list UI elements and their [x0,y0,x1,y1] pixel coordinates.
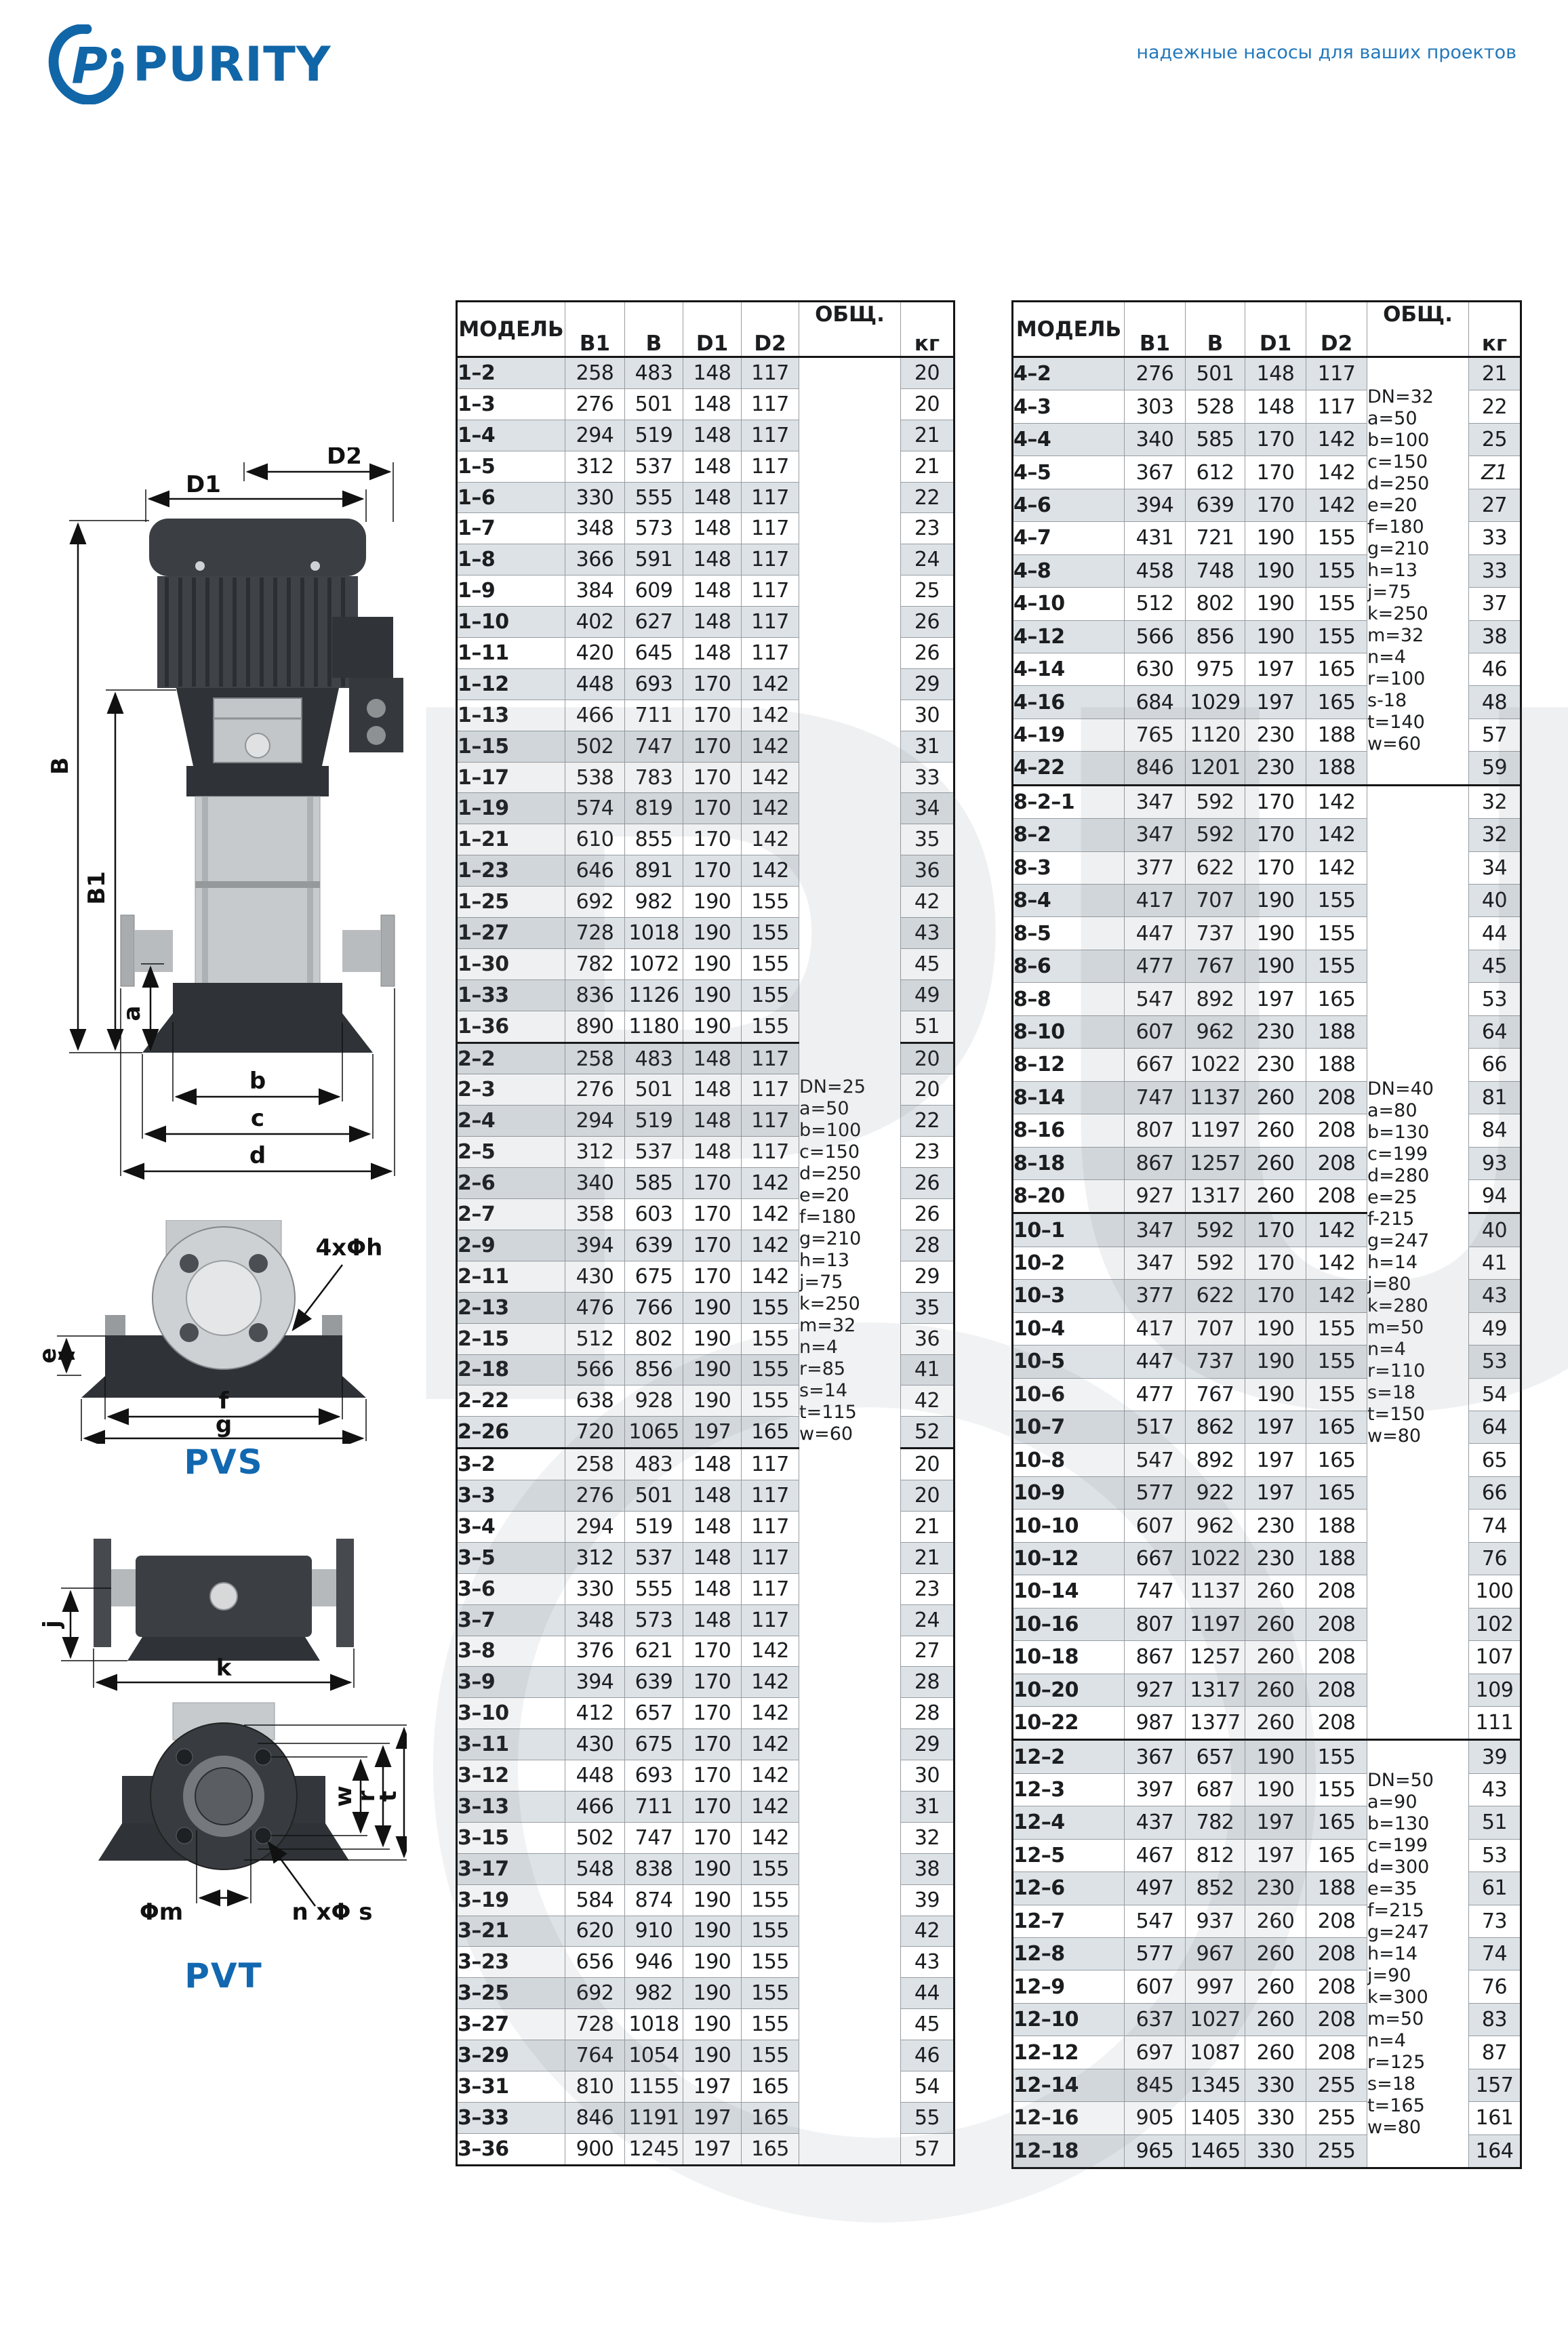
dim-value-cell: 117 [742,1573,799,1604]
dim-value-cell: 188 [1306,719,1367,751]
dim-value-cell: 117 [742,1604,799,1636]
model-cell: 2–3 [457,1074,565,1106]
notes-line: j=75 [1367,582,1468,603]
common-dims-cell: DN=40a=80b=130c=199d=280e=25f-215g=247h=… [1367,785,1469,1740]
dim-value-cell: 117 [742,1542,799,1573]
dimensions-table-series-4-12: МОДЕЛЬB1BD1D2ОБЩ.кг4–2276501148117DN=32a… [1011,300,1520,2169]
model-cell: 10–18 [1013,1641,1125,1674]
dim-value-cell: 1087 [1186,2036,1245,2069]
weight-cell: 34 [901,793,954,824]
dim-label-f: f [219,1388,230,1415]
dim-value-cell: 258 [565,1043,625,1074]
dim-value-cell: 737 [1186,1345,1245,1378]
model-cell: 10–8 [1013,1444,1125,1476]
dim-value-cell: 197 [683,2071,742,2102]
dim-value-cell: 170 [683,668,742,700]
common-dims-cell: DN=50a=90b=130c=199d=300e=35f=215g=247h=… [1367,1740,1469,2168]
dim-value-cell: 502 [565,731,625,762]
dim-value-cell: 838 [625,1853,683,1884]
dim-value-cell: 117 [742,1137,799,1168]
dim-value-cell: 547 [1125,1905,1186,1937]
model-cell: 10–16 [1013,1608,1125,1640]
dim-value-cell: 165 [742,2102,799,2133]
dim-value-cell: 697 [1125,2036,1186,2069]
dim-value-cell: 276 [565,388,625,420]
dim-value-cell: 577 [1125,1476,1186,1509]
dim-value-cell: 208 [1306,1674,1367,1706]
dim-value-cell: 312 [565,1542,625,1573]
weight-cell: 111 [1469,1706,1521,1739]
model-cell: 8–4 [1013,885,1125,917]
dim-value-cell: 810 [565,2071,625,2102]
weight-cell: 25 [1469,423,1521,456]
dim-value-cell: 170 [683,1168,742,1199]
weight-cell: 32 [1469,785,1521,818]
pvs-base-front-view: 4xΦh e f g [41,1220,407,1444]
model-cell: 1–2 [457,357,565,389]
dim-value-cell: 155 [742,1011,799,1043]
dim-value-cell: 967 [1186,1938,1245,1970]
dim-value-cell: 155 [742,1978,799,2009]
dim-value-cell: 165 [1306,1444,1367,1476]
model-cell: 4–19 [1013,719,1125,751]
dim-value-cell: 230 [1245,1510,1306,1542]
model-cell: 4–5 [1013,456,1125,489]
dim-value-cell: 1137 [1186,1575,1245,1608]
dim-value-cell: 142 [742,1230,799,1261]
notes-line: a=50 [799,1098,900,1120]
dim-value-cell: 117 [742,482,799,513]
dim-value-cell: 675 [625,1261,683,1292]
model-cell: 3–19 [457,1884,565,1916]
dim-value-cell: 148 [683,1074,742,1106]
dim-value-cell: 197 [1245,1444,1306,1476]
dim-value-cell: 142 [742,1791,799,1822]
dim-value-cell: 466 [565,1791,625,1822]
common-dims-notes: DN=25a=50b=100c=150d=250e=20f=180g=210h=… [799,1076,900,1445]
weight-cell: 43 [1469,1280,1521,1312]
model-cell: 12–16 [1013,2102,1125,2134]
dim-label-d: d [249,1142,266,1169]
pump-barrel [195,796,320,986]
dim-value-cell: 190 [683,2009,742,2040]
dim-value-cell: 573 [625,513,683,544]
dim-value-cell: 170 [683,1698,742,1729]
dim-value-cell: 148 [683,420,742,451]
model-cell: 2–26 [457,1417,565,1449]
weight-cell: 45 [1469,950,1521,982]
model-cell: 2–7 [457,1199,565,1230]
dim-value-cell: 190 [683,948,742,979]
model-cell: 4–14 [1013,653,1125,685]
dim-label-g: g [216,1411,232,1438]
weight-cell: 22 [901,482,954,513]
dim-value-cell: 197 [1245,983,1306,1015]
dim-value-cell: 982 [625,1978,683,2009]
brand-tagline: надежные насосы для ваших проектов [1136,42,1516,63]
notes-line: h=14 [1367,1252,1468,1274]
dim-value-cell: 170 [1245,423,1306,456]
dim-value-cell: 638 [565,1385,625,1417]
dim-value-cell: 548 [565,1853,625,1884]
notes-line: w=80 [1367,1425,1468,1447]
notes-line: t=140 [1367,712,1468,733]
dim-value-cell: 208 [1306,1179,1367,1213]
weight-cell: 20 [901,1449,954,1480]
dim-value-cell: 1027 [1186,2003,1245,2036]
model-cell: 12–4 [1013,1806,1125,1839]
model-cell: 8–5 [1013,917,1125,950]
dim-label-B: B [47,757,74,775]
dim-value-cell: 155 [1306,1345,1367,1378]
dim-value-cell: 208 [1306,1641,1367,1674]
model-cell: 1–21 [457,824,565,855]
model-cell: 3–13 [457,1791,565,1822]
dim-value-cell: 190 [1245,554,1306,587]
model-cell: 2–5 [457,1137,565,1168]
weight-cell: 33 [1469,554,1521,587]
weight-cell: 23 [901,1573,954,1604]
notes-line: n=4 [1367,1339,1468,1360]
dim-value-cell: 547 [1125,983,1186,1015]
model-cell: 1–8 [457,544,565,575]
dim-value-cell: 142 [1306,1213,1367,1247]
notes-line: b=100 [1367,430,1468,451]
dim-value-cell: 1257 [1186,1147,1245,1179]
weight-cell: 40 [1469,885,1521,917]
weight-cell: 66 [1469,1476,1521,1509]
weight-cell: 21 [1469,357,1521,390]
model-cell: 1–27 [457,918,565,949]
dim-value-cell: 190 [683,979,742,1011]
dim-value-cell: 330 [1245,2069,1306,2101]
dim-value-cell: 142 [1306,1247,1367,1279]
weight-cell: 20 [901,357,954,389]
weight-cell: 93 [1469,1147,1521,1179]
dim-value-cell: 142 [742,1667,799,1698]
dim-value-cell: 1072 [625,948,683,979]
dim-value-cell: 260 [1245,1674,1306,1706]
dim-value-cell: 117 [742,1074,799,1106]
model-cell: 1–7 [457,513,565,544]
dim-value-cell: 711 [625,1791,683,1822]
dim-value-cell: 846 [565,2102,625,2133]
model-cell: 4–10 [1013,588,1125,620]
weight-cell: 24 [901,544,954,575]
weight-cell: 57 [1469,719,1521,751]
model-cell: 1–19 [457,793,565,824]
dim-value-cell: 330 [565,482,625,513]
dim-value-cell: 394 [565,1230,625,1261]
dim-value-cell: 197 [1245,653,1306,685]
dim-value-cell: 260 [1245,1641,1306,1674]
dim-value-cell: 430 [565,1729,625,1760]
dim-value-cell: 547 [1125,1444,1186,1476]
dim-value-cell: 142 [742,1822,799,1853]
weight-cell: 20 [901,1074,954,1106]
model-cell: 8–8 [1013,983,1125,1015]
model-cell: 3–5 [457,1542,565,1573]
dim-value-cell: 846 [1125,752,1186,785]
dim-value-cell: 782 [1186,1806,1245,1839]
notes-line: m=50 [1367,2008,1468,2030]
dim-value-cell: 190 [1245,950,1306,982]
dim-value-cell: 748 [1186,554,1245,587]
dim-value-cell: 892 [1186,1444,1245,1476]
dim-value-cell: 170 [1245,785,1306,818]
model-cell: 8–2–1 [1013,785,1125,818]
dim-value-cell: 208 [1306,1970,1367,2003]
dim-value-cell: 155 [742,1385,799,1417]
dim-value-cell: 347 [1125,785,1186,818]
dim-value-cell: 693 [625,1760,683,1792]
dim-value-cell: 537 [625,1542,683,1573]
dim-value-cell: 448 [565,668,625,700]
dim-value-cell: 458 [1125,554,1186,587]
weight-cell: 26 [901,1168,954,1199]
model-cell: 3–25 [457,1978,565,2009]
model-cell: 10–1 [1013,1213,1125,1247]
notes-line: a=90 [1367,1792,1468,1813]
weight-cell: 35 [901,824,954,855]
dim-value-cell: 711 [625,700,683,731]
model-cell: 8–3 [1013,851,1125,884]
dim-value-cell: 142 [1306,851,1367,884]
dim-value-cell: 155 [742,1853,799,1884]
dim-value-cell: 1137 [1186,1081,1245,1114]
dim-value-cell: 142 [1306,1280,1367,1312]
dim-value-cell: 117 [742,420,799,451]
cable-gland [367,699,386,718]
dim-value-cell: 155 [1306,885,1367,917]
dim-value-cell: 155 [1306,950,1367,982]
notes-line: k=280 [1367,1295,1468,1317]
dim-value-cell: 117 [742,388,799,420]
model-cell: 12–5 [1013,1839,1125,1871]
dim-value-cell: 170 [1245,819,1306,851]
dim-value-cell: 765 [1125,719,1186,751]
dim-value-cell: 928 [625,1385,683,1417]
dim-value-cell: 190 [1245,885,1306,917]
dim-value-cell: 517 [1125,1411,1186,1444]
weight-cell: 42 [901,887,954,918]
dim-value-cell: 584 [565,1884,625,1916]
common-dims-notes: DN=32a=50b=100c=150d=250e=20f=180g=210h=… [1367,386,1468,755]
dim-value-cell: 165 [742,2071,799,2102]
model-cell: 3–12 [457,1760,565,1792]
dim-value-cell: 693 [625,668,683,700]
weight-cell: 20 [901,388,954,420]
dim-value-cell: 1201 [1186,752,1245,785]
bolt-hole [255,1827,271,1844]
dim-value-cell: 117 [742,1106,799,1137]
dim-value-cell: 747 [1125,1575,1186,1608]
model-cell: 1–5 [457,451,565,482]
dim-value-cell: 807 [1125,1114,1186,1147]
table-row: 1–2258483148117DN=25a=50b=100c=150d=250e… [457,357,954,389]
dim-value-cell: 188 [1306,1872,1367,1905]
dim-value-cell: 208 [1306,2003,1367,2036]
dim-value-cell: 170 [683,1636,742,1667]
dim-value-cell: 142 [1306,423,1367,456]
model-cell: 1–6 [457,482,565,513]
dim-value-cell: 170 [683,1667,742,1698]
dim-value-cell: 394 [565,1667,625,1698]
dim-value-cell: 447 [1125,917,1186,950]
notes-line: s=18 [1367,1382,1468,1404]
dim-value-cell: 170 [683,1791,742,1822]
model-cell: 1–12 [457,668,565,700]
weight-cell: 30 [901,700,954,731]
weight-cell: 74 [1469,1510,1521,1542]
weight-cell: 38 [1469,620,1521,653]
table-header-row: МОДЕЛЬB1BD1D2ОБЩ.кг [457,302,954,357]
dim-value-cell: 1155 [625,2071,683,2102]
dim-value-cell: 276 [565,1480,625,1512]
model-cell: 1–10 [457,607,565,638]
dim-value-cell: 767 [1186,950,1245,982]
dim-value-cell: 260 [1245,1179,1306,1213]
weight-cell: 21 [901,451,954,482]
dim-value-cell: 737 [1186,917,1245,950]
dim-value-cell: 258 [565,357,625,389]
model-cell: 12–12 [1013,2036,1125,2069]
dim-value-cell: 747 [625,731,683,762]
dim-value-cell: 142 [742,762,799,793]
dim-value-cell: 764 [565,2040,625,2071]
weight-cell: 20 [901,1043,954,1074]
weight-cell: 25 [901,575,954,607]
model-cell: 2–18 [457,1354,565,1385]
notes-line: DN=40 [1367,1078,1468,1100]
dim-value-cell: 447 [1125,1345,1186,1378]
weight-cell: 53 [1469,1345,1521,1378]
dim-value-cell: 856 [625,1354,683,1385]
model-cell: 8–10 [1013,1015,1125,1048]
dim-value-cell: 190 [1245,1773,1306,1806]
weight-cell: 21 [901,420,954,451]
dim-value-cell: 585 [1186,423,1245,456]
dim-value-cell: 142 [742,731,799,762]
dim-value-cell: 117 [742,1043,799,1074]
notes-line: m=50 [1367,1317,1468,1339]
dim-value-cell: 208 [1306,1608,1367,1640]
plug [210,1583,237,1610]
model-cell: 4–2 [1013,357,1125,390]
column-header: B1 [565,302,625,357]
dim-value-cell: 927 [1125,1674,1186,1706]
dim-value-cell: 117 [742,607,799,638]
notes-line: a=80 [1367,1100,1468,1122]
notes-line: b=130 [1367,1122,1468,1144]
weight-cell: 61 [1469,1872,1521,1905]
dim-value-cell: 170 [1245,1280,1306,1312]
dim-value-cell: 208 [1306,1938,1367,1970]
dim-value-cell: 1345 [1186,2069,1245,2101]
dim-value-cell: 477 [1125,1378,1186,1411]
dim-value-cell: 962 [1186,1510,1245,1542]
dim-value-cell: 807 [1125,1608,1186,1640]
model-cell: 8–14 [1013,1081,1125,1114]
model-cell: 12–9 [1013,1970,1125,2003]
dim-value-cell: 910 [625,1916,683,1947]
dim-value-cell: 1054 [625,2040,683,2071]
weight-cell: 21 [901,1511,954,1542]
model-cell: 12–18 [1013,2134,1125,2168]
dim-value-cell: 603 [625,1199,683,1230]
notes-line: f=180 [799,1207,900,1228]
dim-value-cell: 155 [742,1354,799,1385]
dim-value-cell: 367 [1125,1740,1186,1773]
dim-value-cell: 412 [565,1698,625,1729]
dim-value-cell: 258 [565,1449,625,1480]
dim-value-cell: 155 [742,1323,799,1354]
dim-value-cell: 208 [1306,1706,1367,1739]
dim-value-cell: 519 [625,420,683,451]
dim-value-cell: 402 [565,607,625,638]
dim-value-cell: 430 [565,1261,625,1292]
dim-value-cell: 512 [565,1323,625,1354]
weight-cell: 34 [1469,851,1521,884]
dim-value-cell: 142 [742,793,799,824]
dim-value-cell: 170 [683,824,742,855]
dim-value-cell: 190 [683,1947,742,1978]
dim-value-cell: 148 [683,1604,742,1636]
brand-name: PURITY [133,41,331,88]
weight-cell: 55 [901,2102,954,2133]
weight-cell: 26 [901,1199,954,1230]
weight-cell: Z1 [1469,456,1521,489]
dim-label-4xPhih: 4xΦh [316,1234,383,1261]
column-header: B1 [1125,302,1186,357]
model-cell: 2–15 [457,1323,565,1354]
table-header-row: МОДЕЛЬB1BD1D2ОБЩ.кг [1013,302,1521,357]
weight-cell: 76 [1469,1970,1521,2003]
dim-value-cell: 190 [683,1323,742,1354]
notes-line: e=35 [1367,1878,1468,1900]
notes-line: n=4 [1367,2030,1468,2052]
weight-cell: 41 [1469,1247,1521,1279]
dim-value-cell: 622 [1186,851,1245,884]
notes-line: k=250 [1367,603,1468,625]
weight-cell: 157 [1469,2069,1521,2101]
dim-value-cell: 117 [742,1480,799,1512]
dim-value-cell: 348 [565,513,625,544]
dim-value-cell: 607 [1125,1970,1186,2003]
dim-value-cell: 155 [1306,620,1367,653]
dim-value-cell: 170 [683,1760,742,1792]
model-cell: 2–22 [457,1385,565,1417]
dim-value-cell: 294 [565,420,625,451]
dim-value-cell: 639 [1186,489,1245,521]
dim-value-cell: 165 [1306,1806,1367,1839]
dim-value-cell: 502 [565,1822,625,1853]
dim-value-cell: 142 [742,824,799,855]
model-cell: 3–10 [457,1698,565,1729]
weight-cell: 26 [901,607,954,638]
dim-value-cell: 675 [625,1729,683,1760]
dim-value-cell: 684 [1125,686,1186,719]
dim-label-b: b [249,1068,266,1095]
dim-value-cell: 585 [625,1168,683,1199]
dim-value-cell: 170 [683,855,742,887]
dim-value-cell: 358 [565,1199,625,1230]
model-cell: 8–18 [1013,1147,1125,1179]
weight-cell: 44 [901,1978,954,2009]
dim-value-cell: 609 [625,575,683,607]
weight-cell: 36 [901,855,954,887]
dim-value-cell: 155 [1306,1378,1367,1411]
